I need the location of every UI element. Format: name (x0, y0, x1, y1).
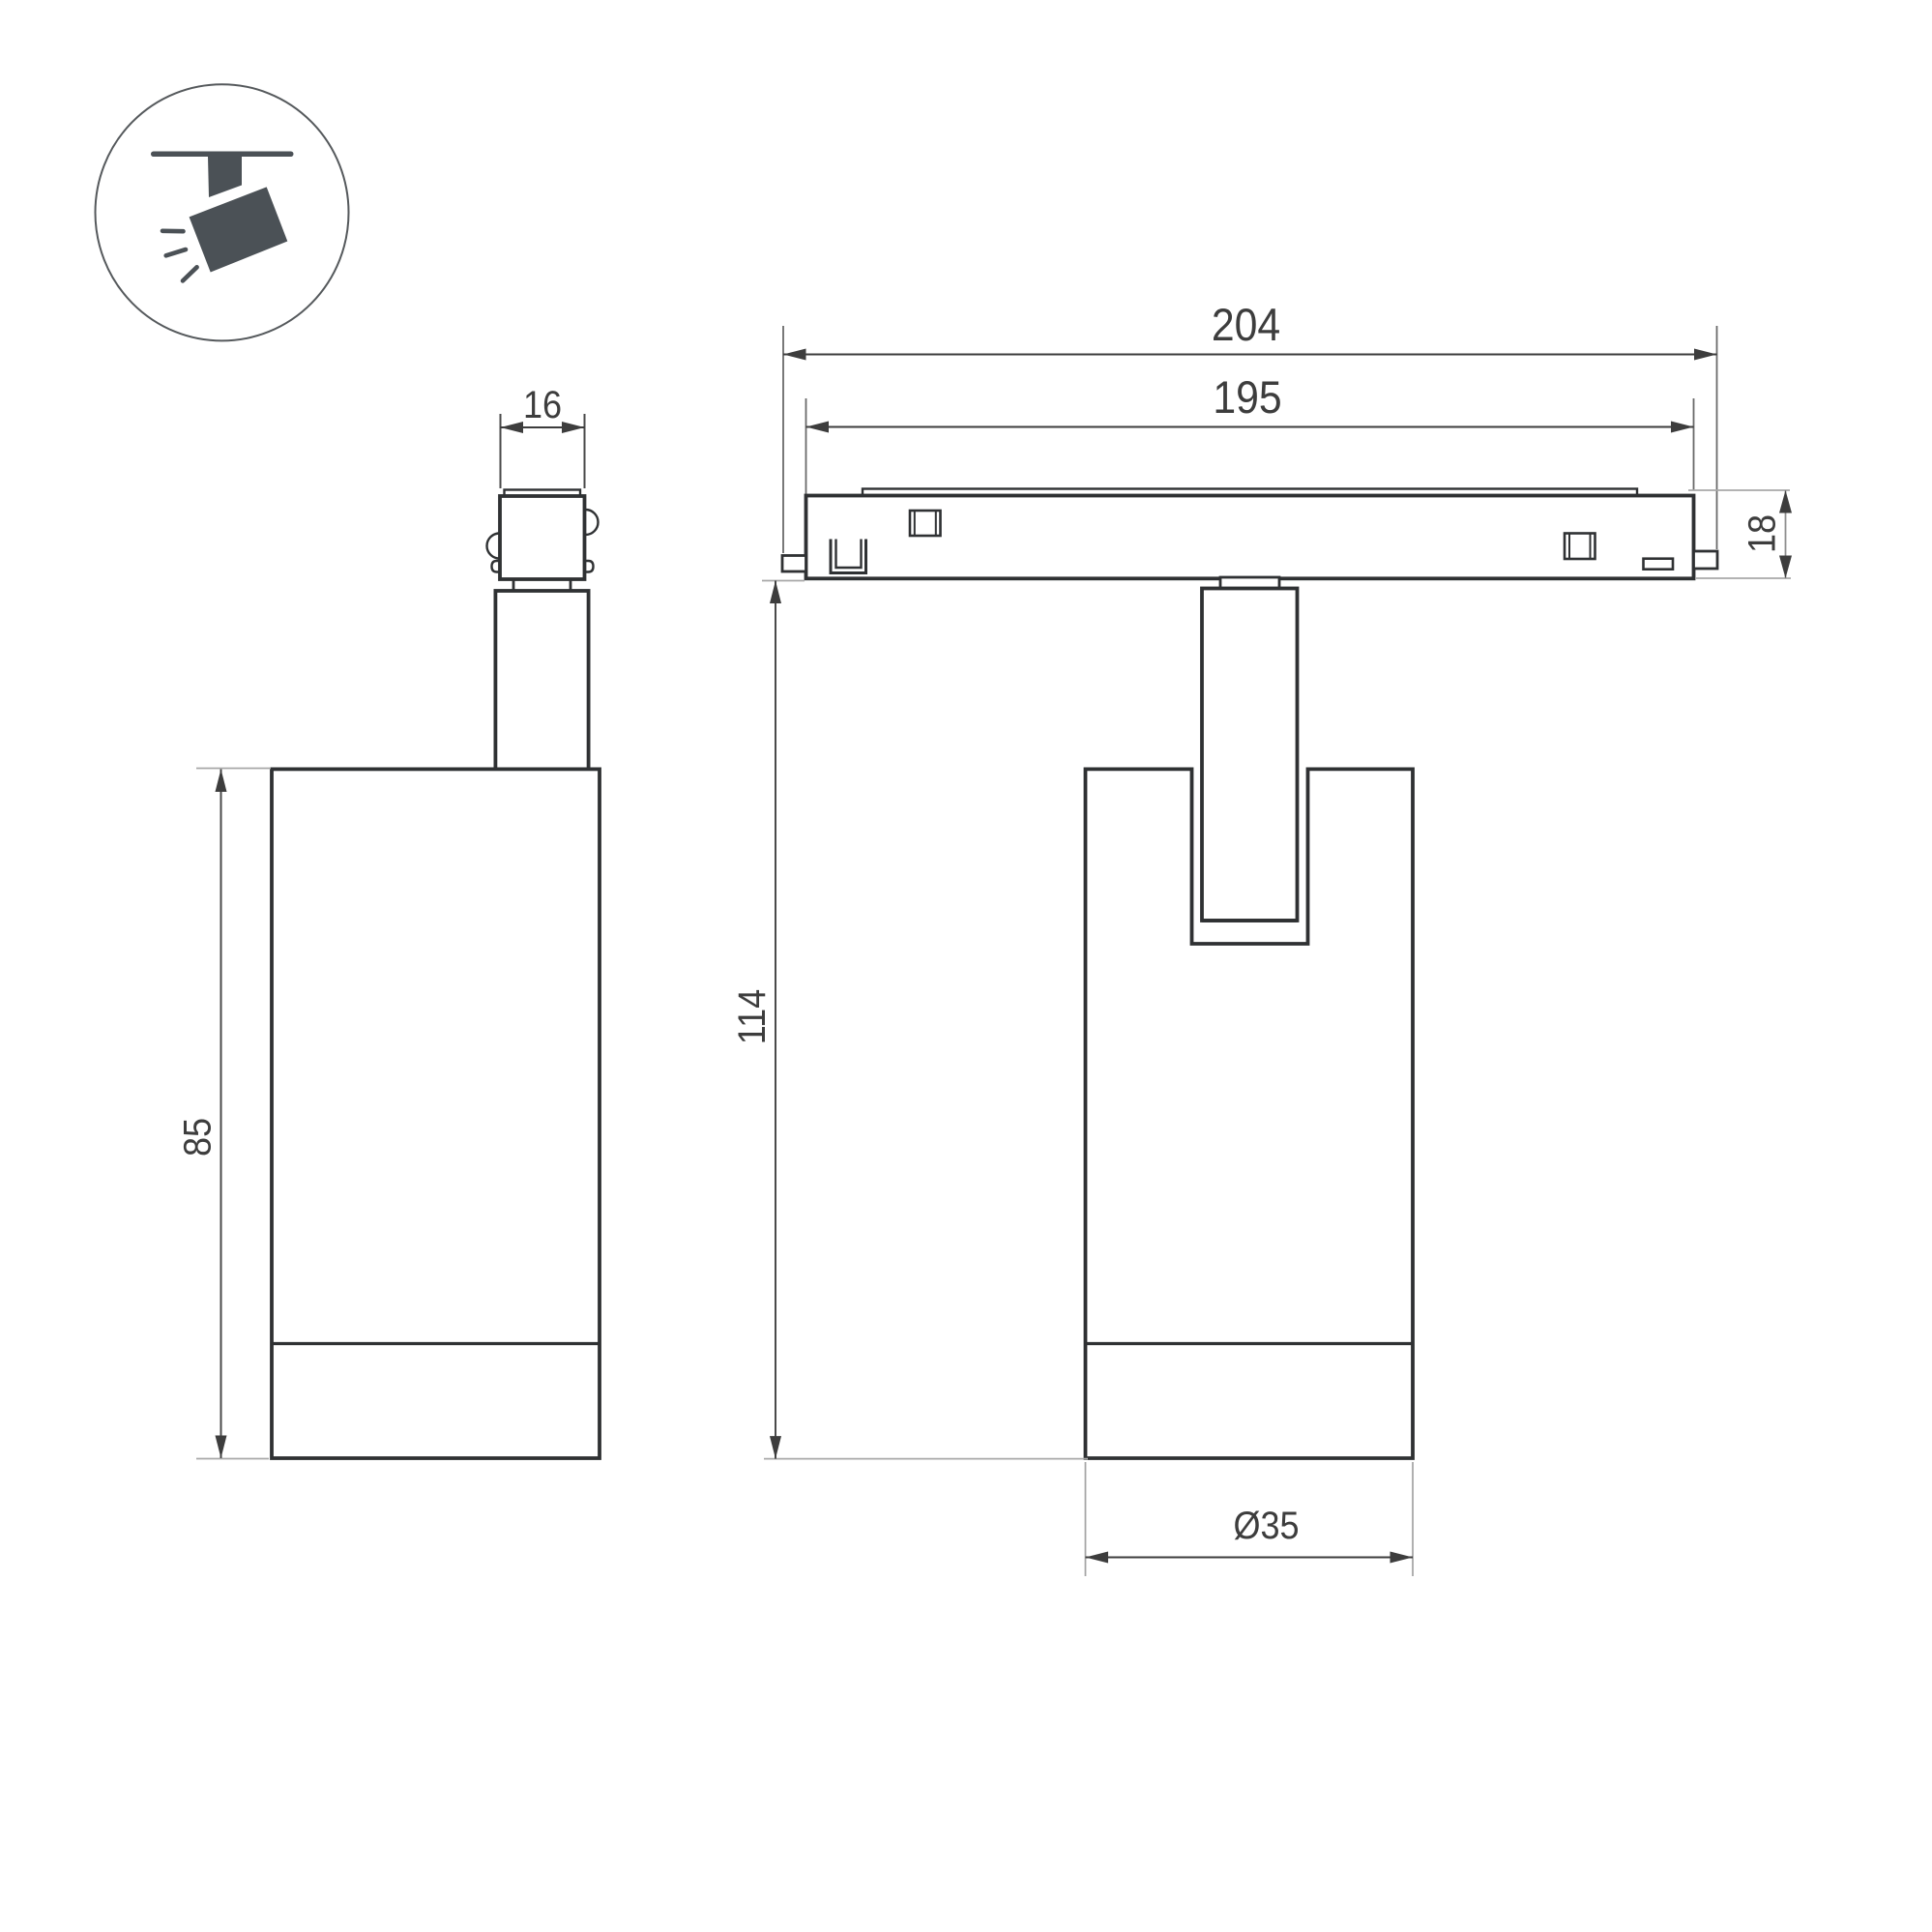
svg-text:16: 16 (523, 384, 562, 426)
svg-text:Ø35: Ø35 (1233, 1505, 1299, 1547)
svg-text:114: 114 (731, 989, 774, 1044)
svg-text:85: 85 (177, 1118, 220, 1156)
svg-text:18: 18 (1742, 514, 1784, 553)
svg-text:195: 195 (1213, 371, 1281, 424)
svg-text:204: 204 (1212, 299, 1280, 351)
